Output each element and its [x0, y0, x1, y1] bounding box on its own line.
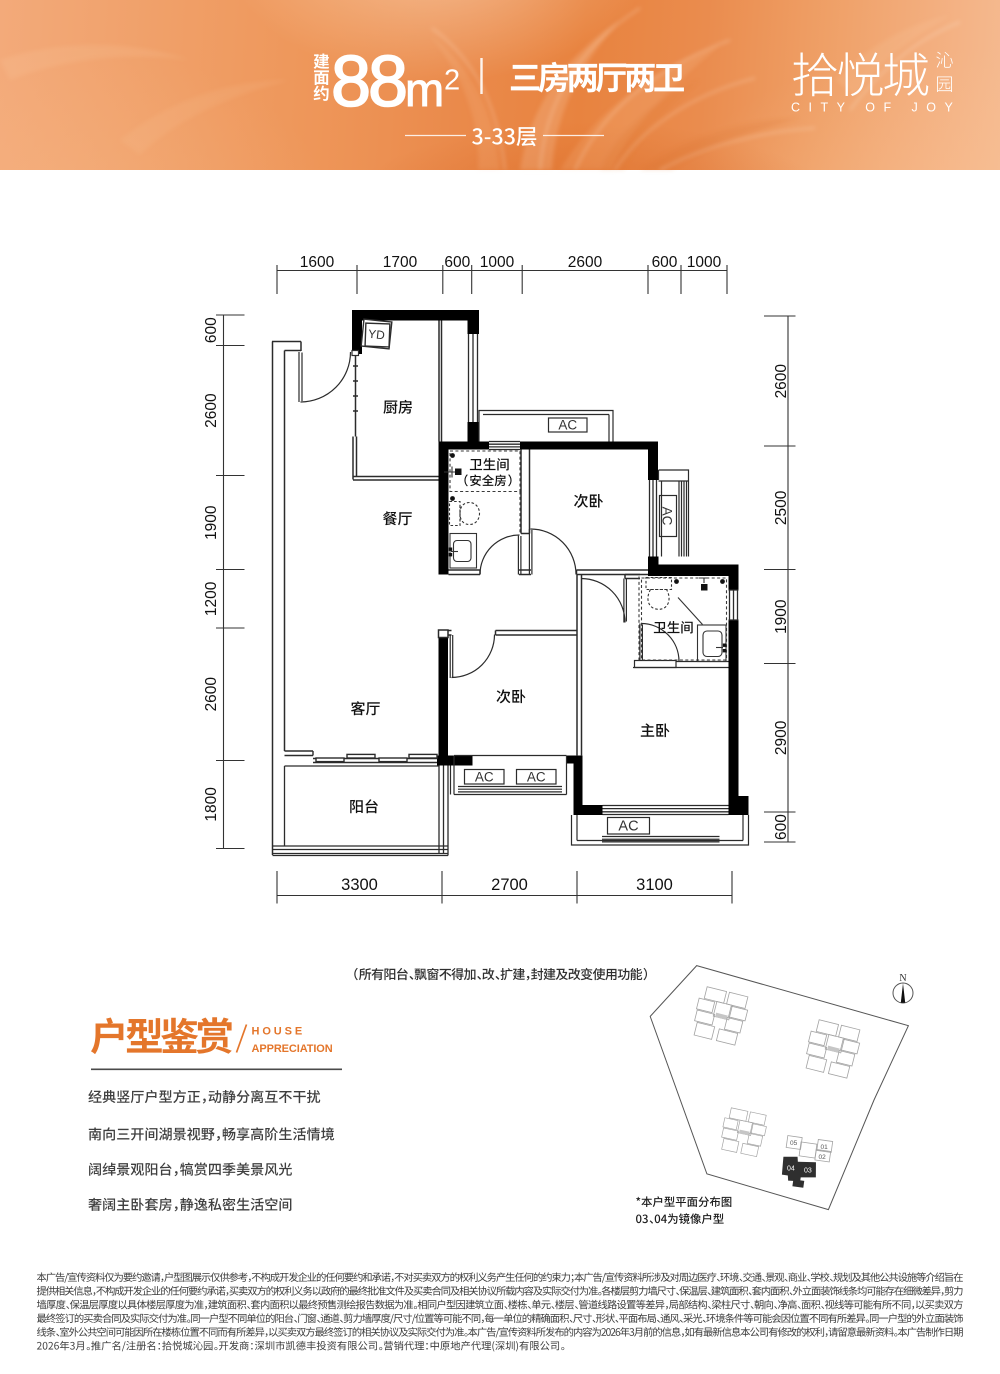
svg-text:1200: 1200 [203, 581, 220, 616]
svg-text:03: 03 [804, 1168, 812, 1175]
svg-text:01: 01 [821, 1144, 829, 1151]
svg-text:YD: YD [367, 327, 385, 343]
svg-text:CITY OF JOY: CITY OF JOY [791, 101, 961, 115]
svg-text:02: 02 [819, 1154, 827, 1161]
svg-text:1700: 1700 [383, 254, 418, 271]
svg-text:05: 05 [790, 1140, 798, 1147]
svg-text:3300: 3300 [341, 876, 378, 894]
svg-text:2: 2 [444, 65, 460, 97]
svg-text:2500: 2500 [773, 490, 790, 525]
svg-text:1900: 1900 [773, 599, 790, 634]
svg-text:1000: 1000 [687, 254, 722, 271]
svg-text:1800: 1800 [203, 787, 220, 822]
svg-text:600: 600 [203, 317, 220, 343]
svg-text:AC: AC [475, 770, 494, 785]
svg-text:m: m [405, 63, 444, 116]
svg-text:2600: 2600 [203, 677, 220, 712]
svg-text:HOUSE: HOUSE [252, 1026, 306, 1038]
svg-text:1900: 1900 [203, 505, 220, 540]
svg-text:600: 600 [773, 814, 790, 840]
svg-text:N: N [899, 973, 906, 984]
svg-text:AC: AC [660, 507, 675, 526]
svg-text:AC: AC [558, 418, 577, 433]
svg-text:600: 600 [652, 254, 678, 271]
svg-text:04: 04 [787, 1166, 795, 1173]
svg-text:2600: 2600 [568, 254, 603, 271]
svg-text:2900: 2900 [773, 720, 790, 755]
svg-text:AC: AC [527, 770, 546, 785]
svg-text:AC: AC [618, 819, 638, 835]
svg-text:2600: 2600 [773, 364, 790, 399]
svg-text:600: 600 [444, 254, 470, 271]
svg-text:1600: 1600 [300, 254, 335, 271]
svg-text:APPRECIATION: APPRECIATION [252, 1043, 333, 1055]
svg-text:88: 88 [331, 42, 405, 122]
svg-text:1000: 1000 [480, 254, 515, 271]
svg-text:3100: 3100 [636, 876, 673, 894]
svg-text:2700: 2700 [491, 876, 528, 894]
svg-text:2600: 2600 [203, 393, 220, 428]
